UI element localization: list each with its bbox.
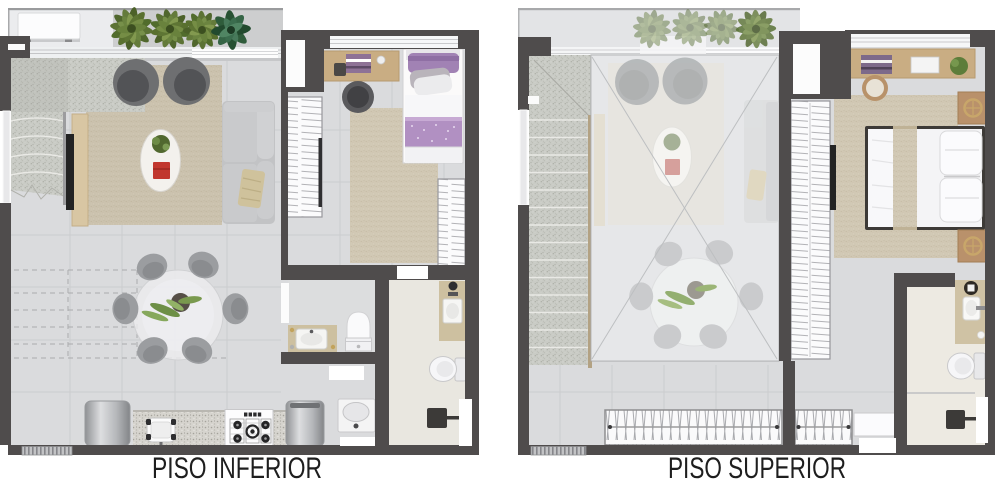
svg-text:PISO INFERIOR: PISO INFERIOR: [152, 452, 322, 481]
svg-text:PISO SUPERIOR: PISO SUPERIOR: [668, 452, 846, 481]
